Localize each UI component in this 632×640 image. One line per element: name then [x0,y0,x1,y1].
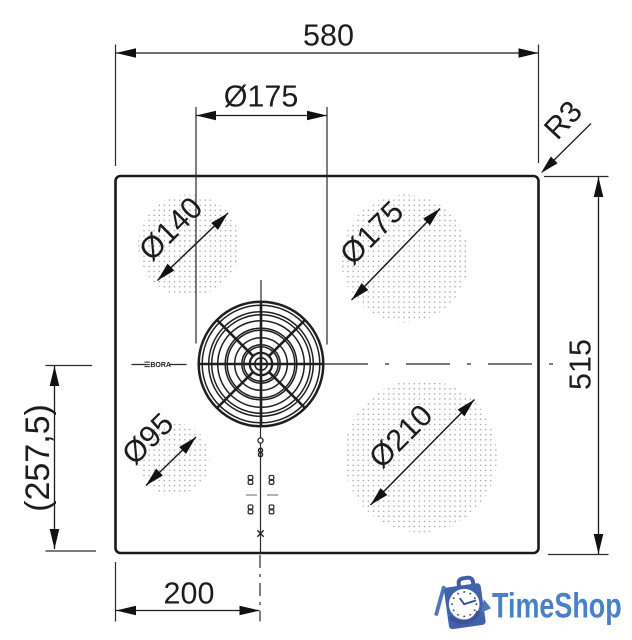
svg-text:TimeShop: TimeShop [492,586,622,625]
svg-text:Ø175: Ø175 [224,80,299,114]
svg-text:580: 580 [303,19,354,53]
svg-text:515: 515 [564,339,598,390]
svg-text:(257,5): (257,5) [19,404,57,512]
svg-text:200: 200 [164,577,215,611]
svg-text:☰BORA: ☰BORA [144,362,171,369]
svg-text:R3: R3 [537,94,588,146]
